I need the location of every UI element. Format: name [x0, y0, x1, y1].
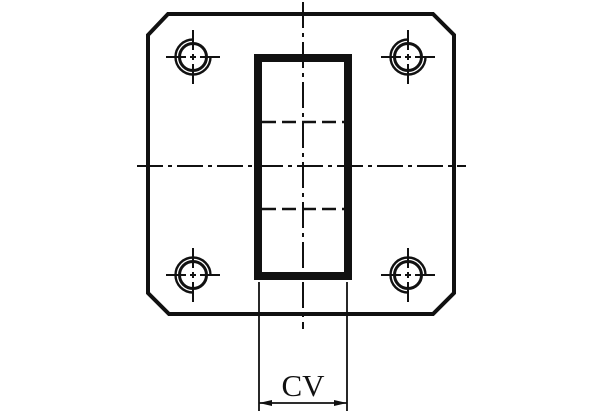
dimension-label: CV: [281, 368, 325, 403]
mounting-hole-bottom-left: [166, 248, 220, 302]
mounting-hole-top-right: [381, 30, 435, 84]
dimension-arrow-right: [334, 400, 347, 406]
mounting-hole-top-left: [166, 30, 220, 84]
mounting-hole-bottom-right: [381, 248, 435, 302]
drawing-svg: CV: [0, 0, 600, 418]
dimension-arrow-left: [259, 400, 272, 406]
engineering-drawing-canvas: CV: [0, 0, 600, 418]
